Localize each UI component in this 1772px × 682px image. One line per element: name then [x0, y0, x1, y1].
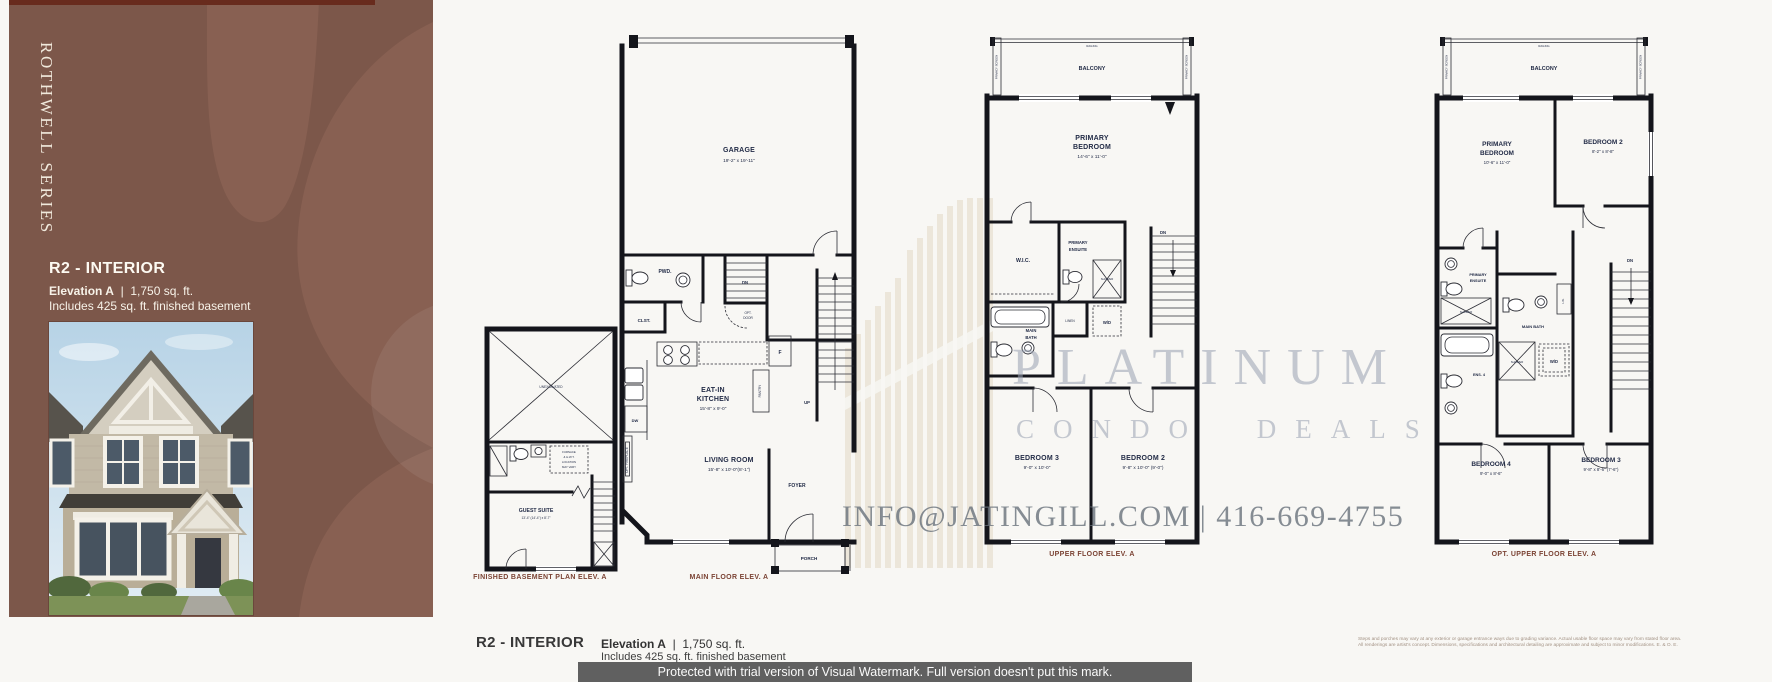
- main-floor-caption: MAIN FLOOR ELEV. A: [619, 574, 839, 581]
- bedroom2-dims: 8'-2" x 8'-8": [1592, 149, 1615, 154]
- disclaimer-line: All renderings are artist's concept. Dim…: [1358, 643, 1724, 649]
- bedroom2-label: BEDROOM 2: [1583, 139, 1623, 146]
- kitchen-label: KITCHEN: [697, 396, 730, 403]
- upper-stairs: [817, 272, 854, 390]
- primary-bedroom-label: BEDROOM: [1073, 144, 1111, 151]
- walls: [487, 329, 615, 569]
- railing-label: RAILING: [1538, 44, 1549, 48]
- balcony: RAILING PRIVACY SCREEN PRIVACY SCREEN BA…: [990, 37, 1194, 95]
- wd-label: W/D: [1550, 359, 1558, 364]
- pantry-label: PANTRY: [758, 384, 762, 398]
- living-label: LIVING ROOM: [704, 457, 753, 464]
- model-includes: Includes 425 sq. ft. finished basement: [49, 299, 250, 313]
- foyer-label: FOYER: [788, 483, 806, 489]
- separator: |: [121, 284, 124, 298]
- footer-separator: |: [673, 637, 676, 651]
- bedroom2-label: BEDROOM 2: [1121, 455, 1165, 462]
- opt-upper-floor-floorplan: RAILING PRIVACY SCREEN PRIVACY SCREEN BA…: [1433, 36, 1655, 548]
- bath-fixtures: FURNACE & H.W.T. LOCATION MAY VARY: [490, 445, 588, 476]
- balcony-label: BALCONY: [1079, 66, 1106, 72]
- primary-ensuite-label: ENSUITE: [1069, 247, 1087, 252]
- primary-bedroom-dims: 10'-6" x 11'-0": [1484, 160, 1511, 165]
- opt-door-label: OPT.: [744, 311, 751, 315]
- guest-suite-dims: 13'-4" (14'-4") x 8'-7": [522, 516, 551, 520]
- footer-elevation-name: Elevation A: [601, 637, 666, 651]
- house-elevation-photo: [48, 321, 254, 616]
- bedroom4-dims: 9'-0" x 8'-6": [1480, 471, 1503, 476]
- dn-label: DN: [1160, 230, 1166, 235]
- balcony: RAILING PRIVACY SCREEN PRIVACY SCREEN BA…: [1440, 37, 1648, 95]
- platinum-watermark: PLATINUM: [1012, 338, 1403, 397]
- stairs: [1151, 236, 1197, 324]
- privacy-screen-label: PRIVACY SCREEN: [995, 55, 999, 79]
- panel-accent-bar: [9, 0, 375, 5]
- garage-dims: 19'-2" x 19'-11": [723, 158, 755, 164]
- series-panel: ROTHWELL SERIES R2 - INTERIOR Elevation …: [9, 0, 433, 617]
- fireplace-label: OPT. FIREPLACE: [625, 447, 629, 473]
- condo-deals-watermark: CONDO DEALS: [1016, 414, 1439, 445]
- model-elevation: Elevation A | 1,750 sq. ft.: [49, 284, 193, 298]
- garage-label: GARAGE: [723, 147, 755, 154]
- dn-label: DN: [1627, 258, 1633, 263]
- walls: [622, 35, 854, 542]
- contact-watermark: INFO@JATINGILL.COM | 416-669-4755: [842, 500, 1404, 534]
- pwd-label: PWD.: [658, 269, 672, 275]
- note-line: MAY VARY: [562, 465, 576, 469]
- main-bath-label: MAIN: [1026, 328, 1037, 333]
- primary-bedroom-label: PRIMARY: [1482, 141, 1512, 148]
- kitchen-dims: 15'-8" x 9'-0": [700, 406, 727, 412]
- opt-upper-floor-caption: OPT. UPPER FLOOR ELEV. A: [1434, 551, 1654, 558]
- kitchen-label: EAT-IN: [701, 387, 725, 394]
- fridge-label: F: [778, 350, 781, 356]
- stairs: [1611, 264, 1651, 431]
- unexcavated-label: UNEXCAVATED: [539, 385, 563, 389]
- guest-suite-label: GUEST SUITE: [519, 508, 554, 514]
- footer-model-title: R2 - INTERIOR: [476, 634, 584, 651]
- stairs: [592, 482, 615, 566]
- opt-door-label: DOOR: [743, 316, 753, 320]
- main-bath-label: MAIN BATH: [1522, 324, 1544, 329]
- lin-label: LIN.: [1561, 298, 1565, 303]
- primary-bedroom-label: BEDROOM: [1480, 150, 1514, 157]
- bedroom3-dims: 9'-8" x 8'-6" (7'-6"): [1583, 467, 1619, 472]
- footer-sqft: 1,750 sq. ft.: [682, 637, 745, 651]
- bedroom2-dims: 9'-8" x 10'-0" (9'-0"): [1123, 465, 1164, 471]
- footer-elevation: Elevation A | 1,750 sq. ft.: [601, 637, 745, 651]
- basement-caption: FINISHED BASEMENT PLAN ELEV. A: [430, 574, 650, 581]
- dn-label: DN: [742, 280, 748, 285]
- primary-bedroom-dims: 14'-6" x 11'-0": [1077, 154, 1106, 160]
- privacy-screen-label: PRIVACY SCREEN: [1185, 55, 1189, 79]
- shower-label: SHOWER: [1511, 360, 1524, 364]
- primary-ensuite-label: ENSUITE: [1470, 279, 1487, 283]
- upper-floor-floorplan: RAILING PRIVACY SCREEN PRIVACY SCREEN BA…: [983, 36, 1201, 548]
- finished-basement-floorplan: FURNACE & H.W.T. LOCATION MAY VARY UNEXC…: [484, 326, 618, 572]
- bedroom3-dims: 9'-0" x 10'-0": [1024, 465, 1051, 471]
- primary-ensuite-label: PRIMARY: [1469, 273, 1487, 277]
- elevation-name: Elevation A: [49, 284, 114, 298]
- ens4-label: ENS. 4: [1473, 373, 1486, 377]
- note-line: & H.W.T.: [564, 455, 575, 459]
- porch-label: PORCH: [801, 556, 818, 561]
- living-dims: 15'-8" x 10'-0"(8'-1"): [708, 467, 751, 473]
- brochure-page: ROTHWELL SERIES R2 - INTERIOR Elevation …: [0, 0, 1772, 682]
- upper-floor-caption: UPPER FLOOR ELEV. A: [982, 551, 1202, 558]
- bedroom3-label: BEDROOM 3: [1581, 457, 1621, 464]
- series-label: ROTHWELL SERIES: [36, 42, 56, 235]
- walls: [1437, 94, 1654, 545]
- railing-label: RAILING: [1086, 44, 1097, 48]
- up-label: UP: [804, 400, 810, 405]
- note-line: FURNACE: [562, 450, 576, 454]
- privacy-screen-label: PRIVACY SCREEN: [1445, 55, 1449, 79]
- bedroom4-label: BEDROOM 4: [1471, 461, 1511, 468]
- shower-label: SHOWER: [1101, 277, 1114, 281]
- primary-ensuite-label: PRIMARY: [1068, 240, 1087, 245]
- primary-bedroom-label: PRIMARY: [1075, 135, 1109, 142]
- linen-label: LINEN: [1065, 319, 1075, 323]
- trial-watermark-banner: Protected with trial version of Visual W…: [578, 662, 1192, 682]
- mainbath-fixtures: [1499, 284, 1571, 380]
- bedroom3-label: BEDROOM 3: [1015, 455, 1059, 462]
- wd-label: W/D: [1103, 320, 1111, 325]
- balcony-label: BALCONY: [1531, 66, 1558, 72]
- privacy-screen-label: PRIVACY SCREEN: [1639, 55, 1643, 79]
- clst-label: CLST.: [638, 318, 651, 323]
- main-floor-floorplan: GARAGE 19'-2" x 19'-11" PWD. CLST. DN OP…: [617, 30, 859, 575]
- model-title: R2 - INTERIOR: [49, 260, 165, 278]
- footer-disclaimer: Steps and porches may vary at any exteri…: [1358, 637, 1724, 649]
- note-line: LOCATION: [562, 460, 576, 464]
- shower-label: SHOWER: [1460, 310, 1473, 314]
- wic-label: W.I.C.: [1016, 258, 1031, 264]
- model-sqft: 1,750 sq. ft.: [130, 284, 193, 298]
- dw-label: DW: [632, 418, 639, 423]
